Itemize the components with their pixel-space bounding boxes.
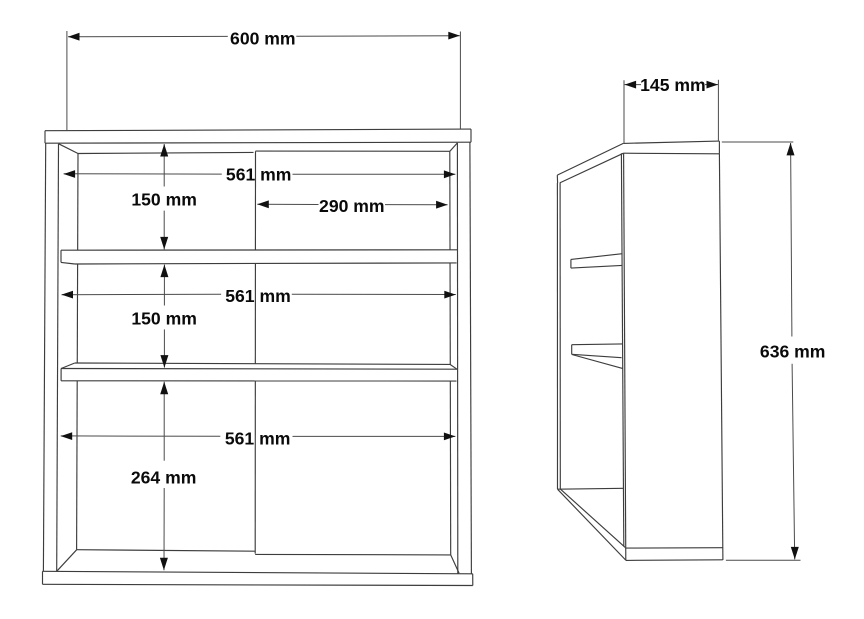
svg-text:561 mm: 561 mm: [226, 165, 292, 185]
svg-text:150 mm: 150 mm: [131, 190, 197, 210]
svg-text:264 mm: 264 mm: [131, 467, 197, 487]
svg-text:600 mm: 600 mm: [230, 28, 296, 48]
svg-text:150 mm: 150 mm: [131, 309, 197, 329]
svg-text:145 mm: 145 mm: [640, 75, 706, 95]
svg-text:290 mm: 290 mm: [319, 196, 385, 216]
svg-text:561 mm: 561 mm: [225, 428, 291, 448]
svg-text:636 mm: 636 mm: [760, 342, 826, 362]
svg-text:561 mm: 561 mm: [225, 286, 291, 306]
